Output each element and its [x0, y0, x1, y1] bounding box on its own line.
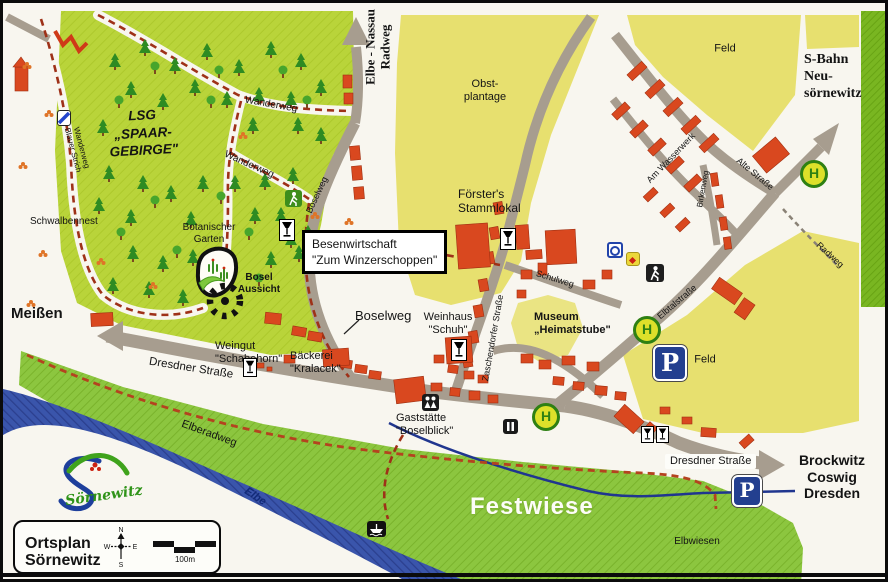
- bus-stop-icon: H: [532, 403, 560, 431]
- wine-glass-icon: [279, 219, 295, 241]
- botanischer-garten-label: Botanischer Garten: [183, 222, 236, 246]
- lsg-area-label: LSG „SPAAR- GEBIRGE": [107, 105, 178, 161]
- dresdner-strasse-east-label: Dresdner Straße: [665, 454, 756, 469]
- bus-stop-icon: H: [800, 160, 828, 188]
- town-map: LSG „SPAAR- GEBIRGE" Obst- plantage Feld…: [0, 0, 888, 582]
- weinhaus-schuh-label: Weinhaus "Schuh": [424, 311, 473, 337]
- hiker-icon: [646, 264, 664, 282]
- compass-w: W: [104, 544, 111, 551]
- bosel-aussicht-label: Bosel Aussicht: [238, 272, 280, 296]
- boselweg-sign-label: Boselweg: [355, 308, 411, 323]
- blue-trail-marker-icon: [57, 110, 71, 126]
- ferry-icon: [367, 521, 386, 537]
- east-green-strip: [861, 11, 888, 307]
- parking-icon: P: [732, 475, 762, 507]
- scale-bar: 100m: [147, 535, 221, 565]
- compass-n: N: [118, 527, 123, 534]
- feld-east-label: Feld: [694, 354, 715, 367]
- schwalbennest-label: Schwalbennest: [30, 216, 98, 228]
- feld-north-label: Feld: [714, 43, 735, 56]
- obstplantage-label: Obst- plantage: [464, 78, 506, 104]
- compass-e: E: [133, 544, 138, 551]
- wine-glass-icon: [243, 358, 257, 377]
- elbwiesen-label: Elbwiesen: [674, 536, 720, 548]
- parking-icon: P: [653, 345, 687, 381]
- legend-title: Ortsplan Sörnewitz: [25, 535, 101, 570]
- compass-rose-icon: N W E S: [101, 523, 141, 569]
- gaststaette-boselblick-label: Gaststätte "Boselblick": [396, 412, 453, 438]
- yellow-poi-icon: [626, 252, 640, 266]
- wine-glass-icon: [500, 228, 516, 250]
- wine-glass-icon: [451, 339, 467, 361]
- compass-s: S: [119, 562, 124, 569]
- hiker-icon: [285, 190, 302, 207]
- brockwitz-coswig-dresden-label: Brockwitz Coswig Dresden: [789, 452, 875, 502]
- sbahn-neusoernewitz-label: S-Bahn Neu- sörnewitz: [804, 52, 862, 102]
- wine-glass-icon: [656, 426, 669, 443]
- festwiese-label: Festwiese: [470, 493, 594, 521]
- scale-label: 100m: [175, 555, 195, 564]
- bus-stop-icon: H: [633, 316, 661, 344]
- elbe-nassau-radweg-label: Elbe - Nassau Radweg: [363, 9, 394, 85]
- restaurant-people-icon: [422, 394, 439, 411]
- foersters-stammlokal-label: Förster's Stammlokal: [458, 187, 521, 215]
- wine-glass-icon: [641, 426, 654, 443]
- museum-heimatstube-label: Museum „Heimatstube": [534, 311, 611, 337]
- info-icon: [503, 419, 518, 434]
- besenwirtschaft-label: Besenwirtschaft "Zum Winzerschoppen": [302, 230, 447, 274]
- blue-poi-icon: [607, 242, 623, 258]
- meissen-label: Meißen: [11, 305, 63, 323]
- baeckerei-kralacek-label: Bäckerei "Kralacek": [290, 350, 341, 376]
